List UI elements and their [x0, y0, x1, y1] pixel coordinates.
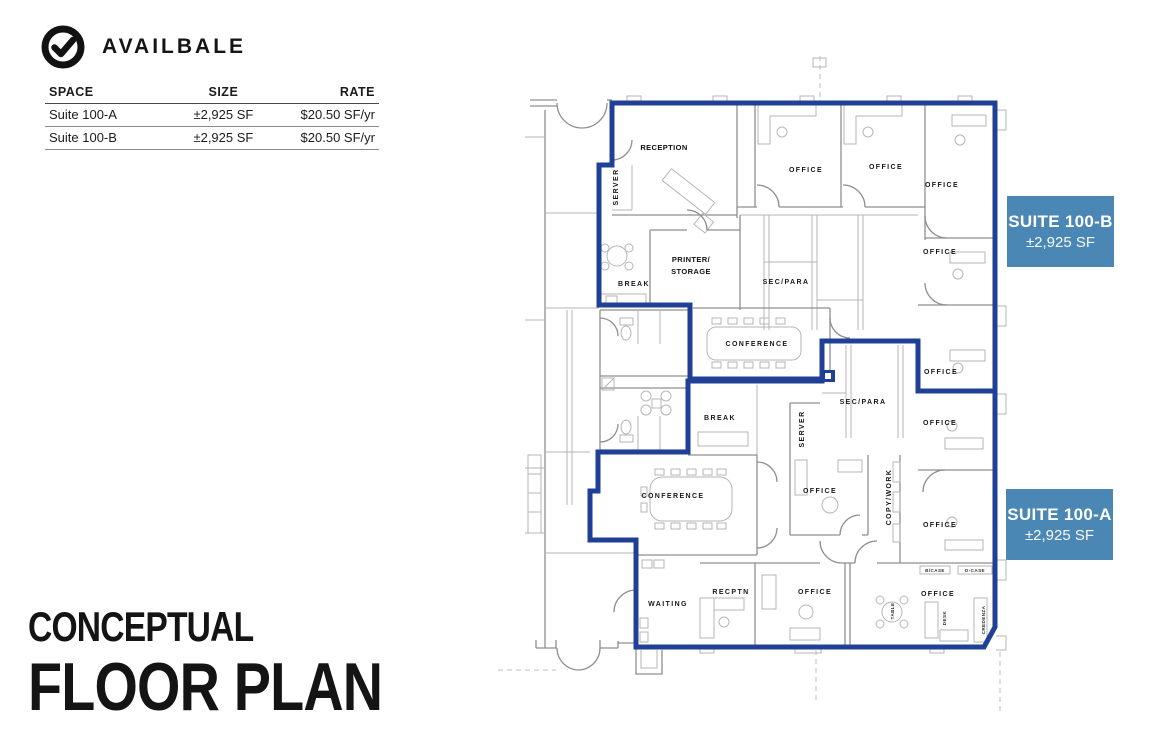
- boundary-door-marker-inner: [825, 373, 831, 379]
- floor-plan-flyer: { "availability": { "title": "AVAILBALE"…: [0, 0, 1150, 750]
- furniture-label-bcase: B/CASE: [925, 568, 945, 573]
- room-label-sec-para: SEC/PARA: [840, 399, 887, 406]
- room-label-office: OFFICE: [789, 167, 823, 174]
- room-label-reception: RECEPTION: [640, 143, 687, 152]
- room-label-office: OFFICE: [923, 420, 957, 427]
- room-label-conference: CONFERENCE: [725, 341, 788, 348]
- room-label-server: SERVER: [799, 410, 806, 447]
- room-label-waiting: WAITING: [648, 601, 688, 608]
- room-label-printer: PRINTER/: [672, 255, 711, 264]
- room-label-break: BREAK: [704, 415, 736, 422]
- room-label-office: OFFICE: [921, 591, 955, 598]
- room-label-office: OFFICE: [923, 522, 957, 529]
- room-label-office: OFFICE: [924, 369, 958, 376]
- room-label-copy-work: COPY/WORK: [886, 469, 893, 526]
- furniture-label-desk: DESK: [942, 611, 947, 626]
- room-label-office: OFFICE: [798, 589, 832, 596]
- room-label-recptn: RECPTN: [712, 589, 749, 596]
- room-label-server: SERVER: [613, 168, 620, 205]
- furniture-label-dcase: D-CASE: [965, 568, 985, 573]
- building-linework: [498, 56, 1006, 712]
- room-label-storage: STORAGE: [671, 267, 711, 276]
- room-label-office: OFFICE: [925, 182, 959, 189]
- floor-plan-drawing: RECEPTION OFFICE OFFICE OFFICE OFFICE SE…: [0, 0, 1150, 750]
- furniture-label-table: TABLE: [890, 603, 895, 620]
- room-label-break: BREAK: [618, 281, 650, 288]
- room-label-sec-para: SEC/PARA: [763, 279, 810, 286]
- room-label-office: OFFICE: [803, 488, 837, 495]
- room-label-conference: CONFERENCE: [641, 493, 704, 500]
- room-label-office: OFFICE: [923, 249, 957, 256]
- furniture-label-credenza: CREDENZA: [981, 605, 986, 634]
- room-label-office: OFFICE: [869, 164, 903, 171]
